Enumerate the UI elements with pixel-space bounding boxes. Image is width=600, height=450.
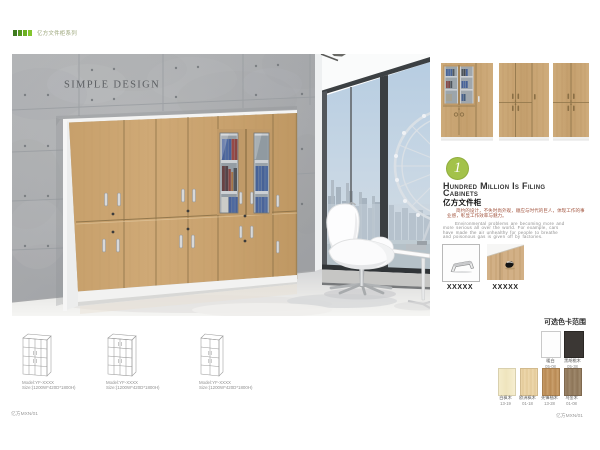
svg-text:SIMPLE DESIGN: SIMPLE DESIGN — [64, 80, 160, 91]
